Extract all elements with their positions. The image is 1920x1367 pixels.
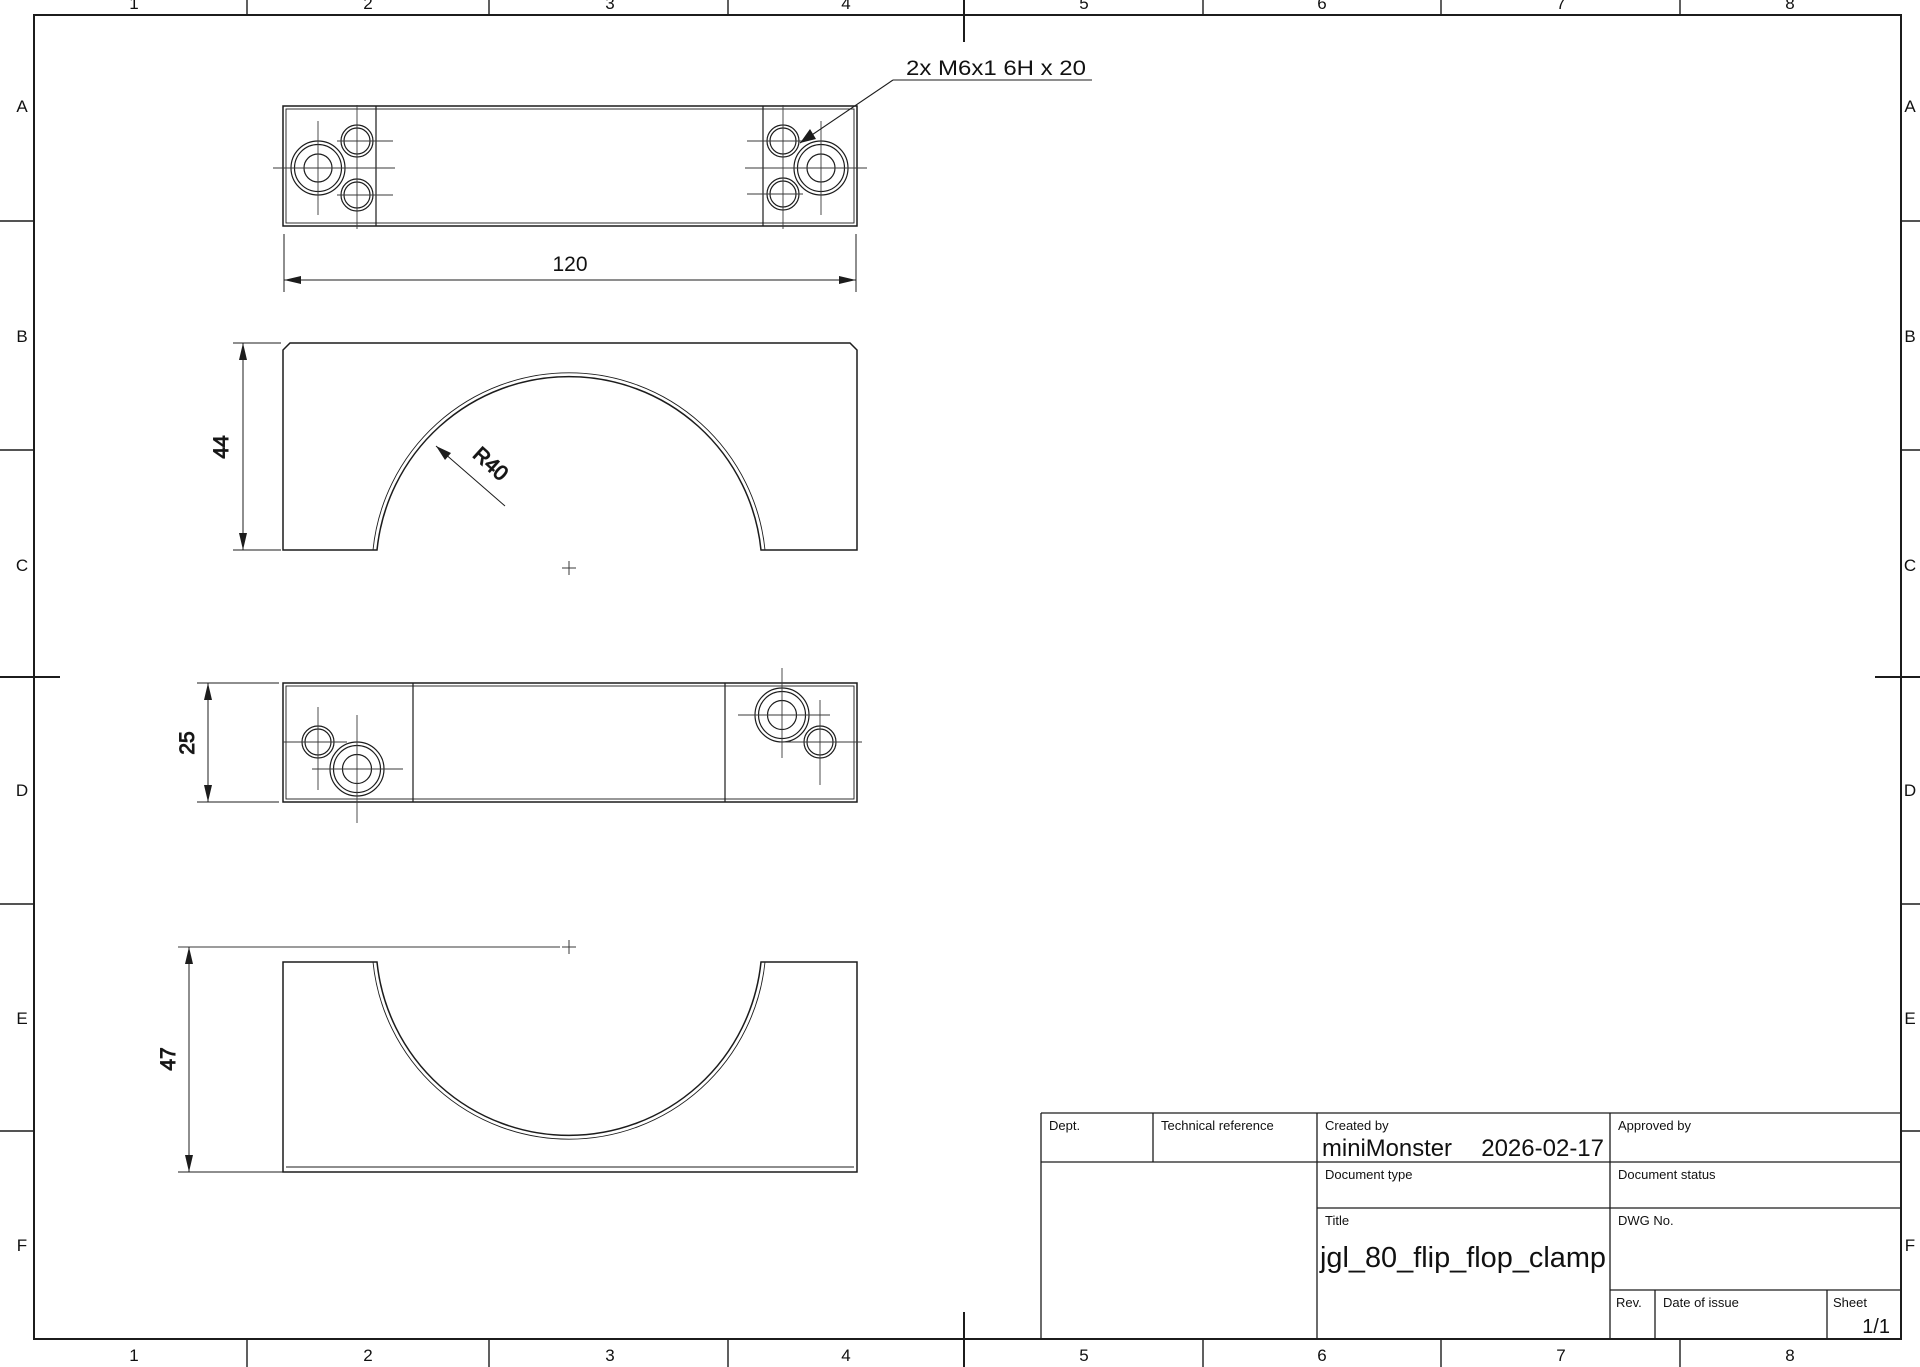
centerlines [738, 668, 862, 785]
frame-border [34, 15, 1901, 1339]
dwg-no-label: DWG No. [1618, 1213, 1674, 1228]
dim-arrow [204, 683, 212, 700]
title-block-borders [1041, 1113, 1901, 1339]
dimension-bottom-height: 47 [157, 947, 640, 1172]
col-label-bottom: 8 [1785, 1346, 1794, 1365]
col-label-bottom: 1 [129, 1346, 138, 1365]
dimension-front-height: 44 [210, 343, 281, 550]
title-value: jgl_80_flip_flop_clamp [1319, 1242, 1606, 1274]
arc-center-mark [562, 561, 576, 575]
row-label-right: D [1904, 781, 1916, 800]
zone-ticks-top [247, 0, 1680, 42]
dim-arrow [239, 533, 247, 550]
col-label-bottom: 4 [841, 1346, 850, 1365]
arc-offset-line [373, 962, 765, 1139]
col-label-bottom: 6 [1317, 1346, 1326, 1365]
dim-arrow [185, 947, 193, 964]
leader-arrowhead [800, 129, 816, 143]
dim-arrow [239, 343, 247, 360]
col-label-bottom: 7 [1556, 1346, 1565, 1365]
col-label-top: 3 [605, 0, 614, 13]
edge-offset-line [286, 109, 854, 223]
edge-offset-line [286, 686, 854, 799]
dim-thickness-text: 25 [176, 731, 199, 754]
outline [283, 962, 857, 1172]
dim-arrow [204, 785, 212, 802]
dim-arrow [185, 1155, 193, 1172]
row-label-right: A [1904, 97, 1916, 116]
side-view [283, 668, 862, 823]
row-label-left: B [16, 327, 27, 346]
arc-center-mark [562, 940, 576, 954]
top-view [273, 105, 867, 229]
creation-date-value: 2026-02-17 [1481, 1135, 1604, 1162]
col-label-top: 7 [1556, 0, 1565, 13]
drawing-sheet: 1 2 3 4 5 6 7 8 1 2 3 4 5 6 7 8 A B C D … [0, 0, 1920, 1367]
leader-arrowhead [436, 446, 451, 460]
col-label-bottom: 3 [605, 1346, 614, 1365]
outline [283, 343, 857, 550]
outline [283, 683, 857, 802]
col-label-top: 2 [363, 0, 372, 13]
front-view: R40 [283, 343, 857, 575]
created-by-value: miniMonster [1322, 1135, 1452, 1162]
approved-by-label: Approved by [1618, 1118, 1691, 1133]
dim-width-text: 120 [552, 253, 587, 276]
col-label-bottom: 2 [363, 1346, 372, 1365]
dim-front-height-text: 44 [210, 435, 233, 459]
col-label-bottom: 5 [1079, 1346, 1088, 1365]
technical-reference-label: Technical reference [1161, 1118, 1274, 1133]
row-label-left: D [16, 781, 28, 800]
rev-label: Rev. [1616, 1295, 1642, 1310]
title-block: Dept. Technical reference Created by min… [1041, 1113, 1901, 1339]
row-label-left: E [16, 1009, 27, 1028]
col-label-top: 5 [1079, 0, 1088, 13]
document-type-label: Document type [1325, 1167, 1412, 1182]
dept-label: Dept. [1049, 1118, 1080, 1133]
arc-offset-line [373, 373, 765, 550]
row-label-left: A [16, 97, 28, 116]
dim-arrow [284, 276, 301, 284]
created-by-label: Created by [1325, 1118, 1389, 1133]
row-label-right: F [1905, 1236, 1915, 1255]
zone-ticks-right [1875, 221, 1920, 1131]
col-label-top: 1 [129, 0, 138, 13]
hole-callout-text: 2x M6x1 6H x 20 [906, 57, 1086, 80]
sheet-number-value: 1/1 [1862, 1316, 1890, 1338]
outline [283, 106, 857, 226]
dimension-thickness: 25 [176, 683, 279, 802]
title-label: Title [1325, 1213, 1349, 1228]
row-label-left: C [16, 556, 28, 575]
zone-ticks-left [0, 221, 60, 1131]
dim-radius-text: R40 [468, 443, 512, 486]
date-of-issue-label: Date of issue [1663, 1295, 1739, 1310]
row-label-right: B [1904, 327, 1915, 346]
col-label-top: 4 [841, 0, 850, 13]
hole-callout: 2x M6x1 6H x 20 [800, 57, 1092, 143]
dim-bottom-height-text: 47 [157, 1047, 180, 1070]
dim-arrow [839, 276, 856, 284]
row-label-right: E [1904, 1009, 1915, 1028]
bottom-view [178, 940, 857, 1172]
col-label-top: 6 [1317, 0, 1326, 13]
dimension-width: 120 [284, 234, 856, 292]
col-label-top: 8 [1785, 0, 1794, 13]
leader-line [800, 80, 893, 143]
row-label-left: F [17, 1236, 27, 1255]
document-status-label: Document status [1618, 1167, 1716, 1182]
sheet-label: Sheet [1833, 1295, 1867, 1310]
row-label-right: C [1904, 556, 1916, 575]
